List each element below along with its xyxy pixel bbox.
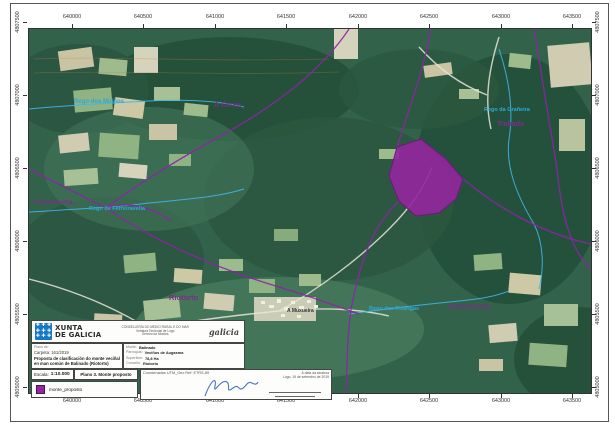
place-label-muxueira: A Muxueira <box>287 308 314 314</box>
stream-label-w: Rego de Ferreiravella <box>89 206 146 212</box>
grid-tick-right <box>592 168 596 169</box>
signature-date: Á data da sinatura Lugo, 15 de setembro … <box>283 371 329 379</box>
grid-tick-bottom <box>501 394 502 398</box>
grid-tick-top <box>72 24 73 28</box>
title-block-header: ✚✚✚✚✚✚✚✚✚ XUNTA DE GALICIA CONSELLERÍA D… <box>31 320 245 343</box>
escala-label: Escala: <box>34 372 49 377</box>
easting-label-top: 642000 <box>349 14 367 20</box>
plan-description-cell: Plano de: Carpeta: 161/2019 Proposta de … <box>31 343 123 369</box>
easting-label-top: 641500 <box>277 14 295 20</box>
grid-tick-left <box>23 387 27 388</box>
legend: monte_proposto <box>31 381 138 398</box>
grid-tick-left <box>23 314 27 315</box>
grid-tick-top <box>215 24 216 28</box>
grid-tick-right <box>592 387 596 388</box>
grid-tick-bottom <box>358 394 359 398</box>
northing-label-left: 4807500 <box>15 11 21 32</box>
easting-label-top: 641000 <box>206 14 224 20</box>
illegible-signer-text-line2 <box>275 396 315 397</box>
dept-line-3: Servizo de Montes <box>103 333 207 337</box>
scale-cell: Escala: 1:10.000 <box>31 369 74 380</box>
concello-value: Riotorto <box>143 361 158 366</box>
easting-label-top: 642500 <box>420 14 438 20</box>
concello-label: Concello: <box>126 361 141 366</box>
grid-tick-right <box>592 22 596 23</box>
place-label-riotorto: Riotorto <box>169 293 199 302</box>
xunta-name-line2: DE GALICIA <box>55 332 101 339</box>
easting-label-bottom: 643500 <box>563 398 581 404</box>
easting-label-top: 640000 <box>63 14 81 20</box>
northing-label-left: 4807000 <box>15 84 21 105</box>
easting-label-bottom: 642000 <box>349 398 367 404</box>
carpeta-number: Carpeta: 161/2019 <box>34 350 120 355</box>
grid-tick-bottom <box>429 394 430 398</box>
xunta-de-galicia-logo-icon: ✚✚✚✚✚✚✚✚✚ <box>35 323 52 340</box>
northing-label-left: 4806000 <box>15 230 21 251</box>
plan-label: Plano de: <box>34 345 120 349</box>
galicia-brand-logo: galicia <box>209 327 239 337</box>
grid-tick-top <box>286 24 287 28</box>
easting-label-bottom: 643000 <box>492 398 510 404</box>
grid-tick-left <box>23 22 27 23</box>
northing-label-left: 4805500 <box>15 303 21 324</box>
place-label-ferreiravella: Ferreiravella <box>34 199 73 206</box>
northing-label-left: 4806500 <box>15 157 21 178</box>
stream-label-nw: Rego dos Muíños <box>74 99 125 105</box>
plano-number: Plano 3. Monte proposto <box>80 372 131 377</box>
grid-tick-top <box>501 24 502 28</box>
grid-tick-top <box>429 24 430 28</box>
map-sheet: Rego dos Muíños A Órrea Rego da Grañeira… <box>0 0 615 425</box>
escala-value: 1:10.000 <box>51 372 70 377</box>
grid-tick-bottom <box>572 394 573 398</box>
legend-label: monte_proposto <box>49 387 82 392</box>
grid-tick-left <box>23 168 27 169</box>
handwritten-signature <box>201 374 261 400</box>
legend-swatch-monte-proposto <box>36 385 45 394</box>
easting-label-top: 640500 <box>134 14 152 20</box>
grid-tick-left <box>23 241 27 242</box>
easting-label-top: 643000 <box>492 14 510 20</box>
grid-tick-top <box>143 24 144 28</box>
coordinates-signature-cell: Coordenadas UTM_Geo Ref: ETRS-89 Á data … <box>140 369 332 400</box>
easting-label-bottom: 640000 <box>63 398 81 404</box>
easting-label-top: 643500 <box>563 14 581 20</box>
date-line-2: Lugo, 15 de setembro de 2019 <box>283 375 329 379</box>
coords-ref-label: Coordenadas UTM_Geo Ref: ETRS-89 <box>143 371 209 379</box>
monte-fields-cell: Monte:Balinado Parroquia:Veciños de Auga… <box>123 343 245 369</box>
northing-label-left: 4805000 <box>15 376 21 397</box>
stream-label-s: Rego das Rodrigas <box>369 306 419 312</box>
plano-number-cell: Plano 3. Monte proposto <box>74 369 138 380</box>
grid-tick-top <box>358 24 359 28</box>
place-label-orrea: A Órrea <box>214 100 242 109</box>
grid-tick-left <box>23 95 27 96</box>
easting-label-bottom: 642500 <box>420 398 438 404</box>
department-lines: CONSELLERÍA DO MEDIO RURAL E DO MAR Xefa… <box>101 326 209 337</box>
grid-tick-right <box>592 241 596 242</box>
stream-label-ne: Rego da Grañeira <box>484 107 531 113</box>
grid-tick-right <box>592 95 596 96</box>
illegible-signer-text-line1 <box>269 392 321 393</box>
place-label-pontenova: A Pontenova <box>447 304 490 311</box>
grid-tick-top <box>572 24 573 28</box>
plan-title: Proposta de clasificación do monte veciñ… <box>34 356 120 366</box>
xunta-name: XUNTA DE GALICIA <box>55 325 101 339</box>
place-label-trabada: Trabada <box>497 121 524 128</box>
grid-tick-right <box>592 314 596 315</box>
